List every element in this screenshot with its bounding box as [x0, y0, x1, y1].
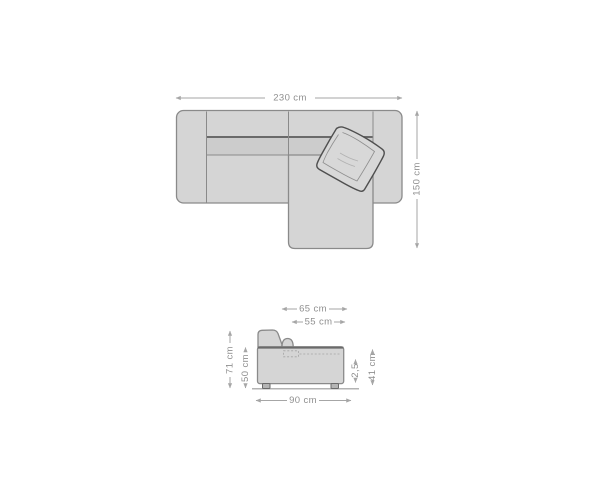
dimension-90-label: 90 cm [289, 395, 317, 406]
dimension-71-label: 71 cm [225, 346, 236, 374]
dimension-width-label: 230 cm [273, 93, 307, 104]
side-front-leg [263, 384, 271, 389]
side-rear-leg [331, 384, 339, 389]
furniture-dimension-diagram: 230 cm 150 cm [0, 0, 600, 500]
sofa-side-view: 65 cm 55 cm 71 cm 50 cm [225, 304, 379, 407]
dimension-depth: 150 cm [412, 111, 423, 248]
sofa-top-view: 230 cm 150 cm [176, 93, 423, 249]
dimension-41-label: 41 cm [367, 353, 378, 381]
dimension-65-label: 65 cm [299, 304, 327, 315]
dimension-total-depth: 90 cm [256, 395, 351, 406]
dimension-width: 230 cm [176, 93, 402, 104]
dimension-55-label: 55 cm [305, 317, 333, 328]
dimension-total-height: 71 cm [225, 331, 236, 388]
dimension-backrest-depth: 65 cm [282, 304, 347, 315]
dimension-50-label: 50 cm [240, 354, 251, 382]
side-body [258, 347, 344, 384]
dimension-seat-depth: 55 cm [292, 317, 345, 328]
side-back-cushion [258, 330, 282, 347]
dimension-depth-label: 150 cm [412, 162, 423, 196]
side-headrest-roll [282, 339, 293, 348]
diagram-canvas: 230 cm 150 cm [0, 0, 600, 500]
dimension-ground-clearance: 2,5 [350, 360, 361, 383]
dimension-body-height: 50 cm [240, 348, 251, 389]
dimension-seat-height: 41 cm [367, 350, 378, 386]
dimension-2-5-label: 2,5 [350, 363, 361, 377]
